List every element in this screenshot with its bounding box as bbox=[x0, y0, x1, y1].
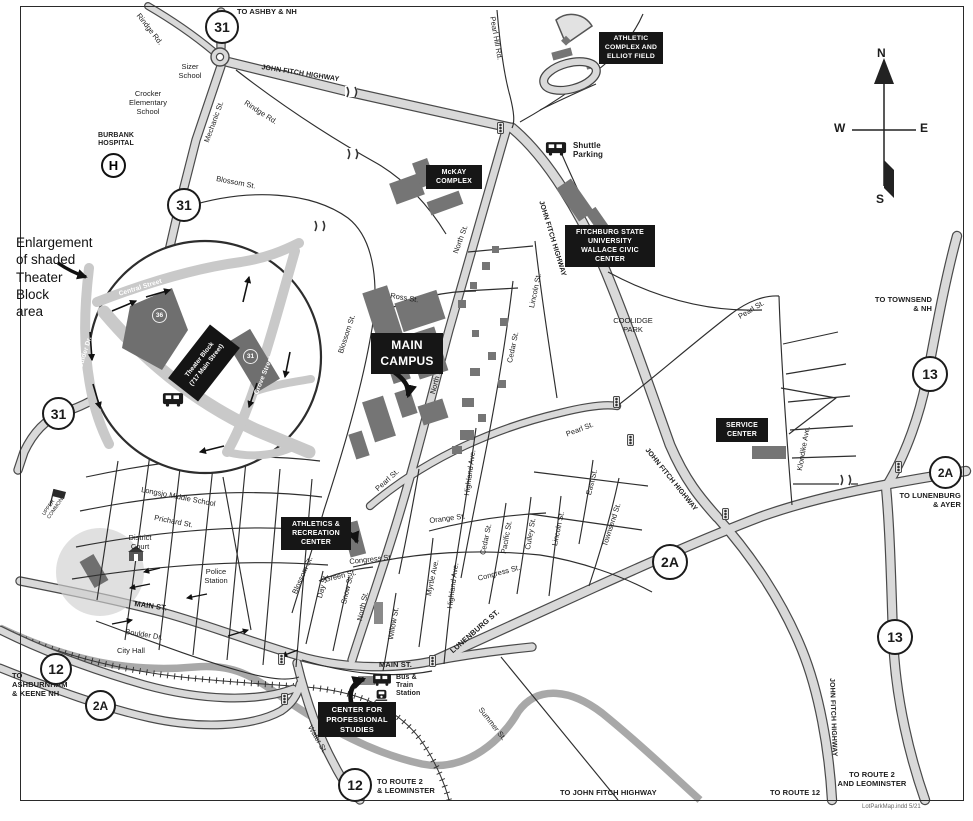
compass-north-label: N bbox=[877, 46, 886, 60]
route-31-shield-mid: 31 bbox=[167, 188, 201, 222]
route-31-shield-low: 31 bbox=[42, 397, 75, 430]
mckay-complex-box: McKAY COMPLEX bbox=[426, 165, 482, 189]
direction-to-route2-leominster: TO ROUTE 2 & LEOMINSTER bbox=[377, 778, 435, 796]
fitchburg-campus-parking-map: TO ASHBY & NH Sizer School JOHN FITCH HI… bbox=[0, 0, 973, 821]
center-professional-studies-box: CENTER FOR PROFESSIONAL STUDIES bbox=[318, 702, 396, 737]
direction-to-route12: TO ROUTE 12 bbox=[770, 789, 820, 798]
service-center-box: SERVICE CENTER bbox=[716, 418, 768, 442]
shuttle-parking-label: Shuttle Parking bbox=[573, 141, 603, 160]
main-campus-box: MAIN CAMPUS bbox=[371, 333, 443, 374]
enlargement-note: Enlargement of shaded Theater Block area bbox=[16, 234, 93, 320]
bus-train-station-label: Bus & Train Station bbox=[396, 674, 420, 698]
direction-to-john-fitch: TO JOHN FITCH HIGHWAY bbox=[560, 789, 657, 798]
athletics-recreation-box: ATHLETICS & RECREATION CENTER bbox=[281, 517, 351, 550]
compass-south-label: S bbox=[876, 192, 884, 206]
compass-rose bbox=[852, 58, 916, 198]
coolidge-park-label: COOLIDGE PARK bbox=[604, 317, 662, 335]
hospital-icon: H bbox=[101, 153, 126, 178]
sizer-school-label: Sizer School bbox=[168, 63, 212, 81]
route-31-shield-top: 31 bbox=[205, 10, 239, 44]
shuttle-bus-icon bbox=[546, 142, 566, 156]
athletic-complex-box: ATHLETIC COMPLEX AND ELLIOT FIELD bbox=[599, 32, 663, 64]
city-hall-label: City Hall bbox=[117, 647, 145, 656]
main-st-label-2: MAIN ST. bbox=[379, 661, 412, 670]
parking-lot-36-badge: 36 bbox=[152, 308, 167, 323]
route-12-shield-south: 12 bbox=[338, 768, 372, 802]
district-court-label: District Court bbox=[119, 534, 161, 552]
parking-lot-31-badge: 31 bbox=[243, 349, 258, 364]
direction-to-ashby: TO ASHBY & NH bbox=[237, 8, 297, 17]
direction-to-lunenburg: TO LUNENBURG & AYER bbox=[897, 492, 961, 510]
compass-east-label: E bbox=[920, 121, 928, 135]
station-bus-icon bbox=[373, 674, 391, 686]
crocker-school-label: Crocker Elementary School bbox=[118, 90, 178, 117]
route-13-shield-north: 13 bbox=[912, 356, 948, 392]
direction-to-townsend: TO TOWNSEND & NH bbox=[870, 296, 932, 314]
direction-to-route2-and-leominster: TO ROUTE 2 AND LEOMINSTER bbox=[836, 771, 908, 789]
map-file-footer: LotParkMap.indd 5/21 bbox=[862, 804, 921, 811]
route-2a-shield-east: 2A bbox=[929, 456, 962, 489]
route-12-shield-west: 12 bbox=[40, 653, 72, 685]
burbank-hospital-label: BURBANK HOSPITAL bbox=[94, 132, 138, 149]
route-13-shield-south: 13 bbox=[877, 619, 913, 655]
compass-west-label: W bbox=[834, 121, 845, 135]
wallace-civic-center-box: FITCHBURG STATE UNIVERSITY WALLACE CIVIC… bbox=[565, 225, 655, 267]
route-2a-shield-mid: 2A bbox=[652, 544, 688, 580]
police-station-label: Police Station bbox=[194, 568, 238, 586]
route-2a-shield-west: 2A bbox=[85, 690, 116, 721]
station-train-icon bbox=[376, 690, 387, 701]
